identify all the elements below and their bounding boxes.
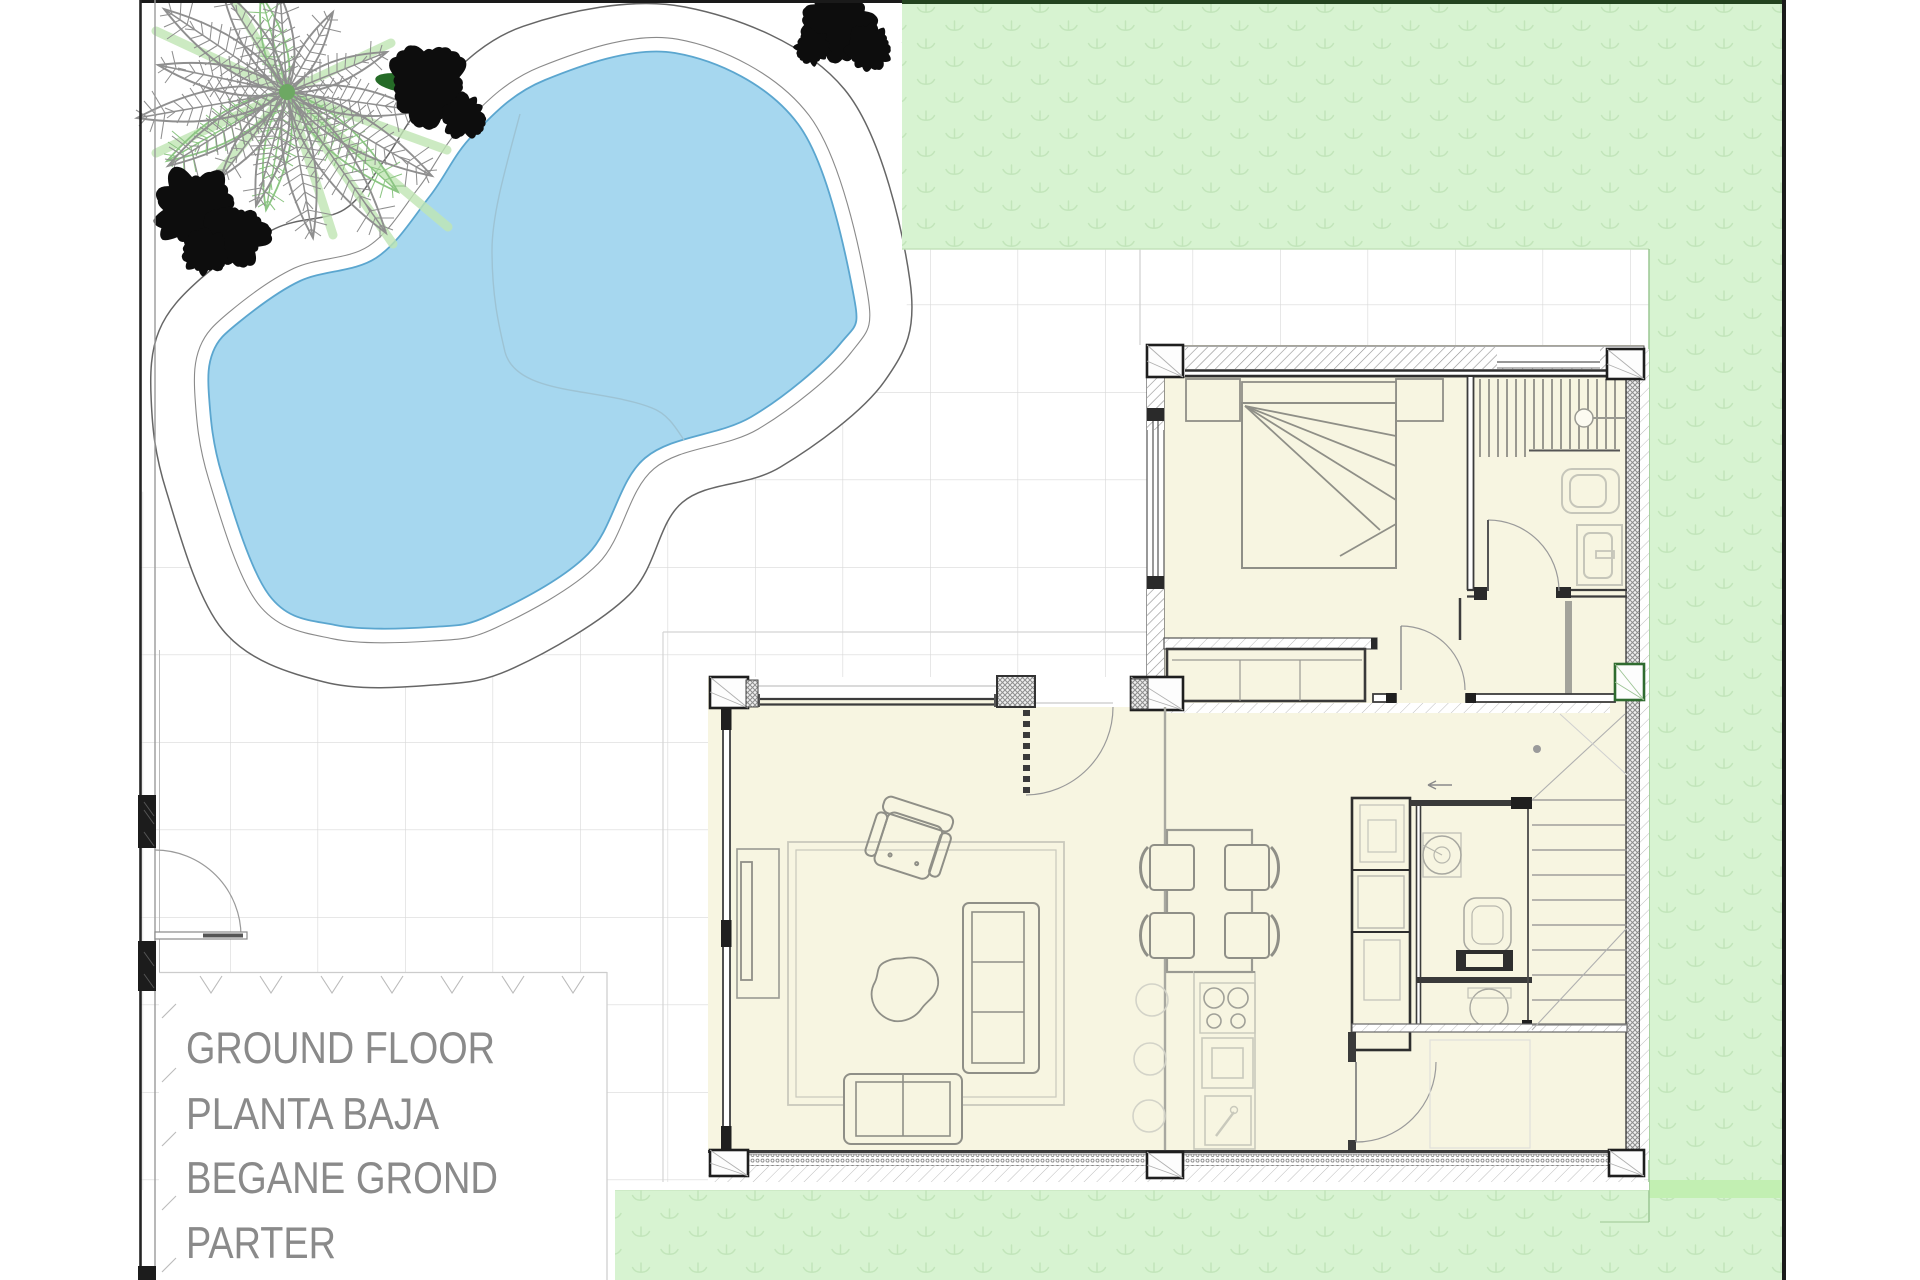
svg-text:GROUND FLOOR: GROUND FLOOR bbox=[186, 1024, 495, 1073]
svg-text:BEGANE GROND: BEGANE GROND bbox=[186, 1154, 498, 1203]
svg-text:PARTER: PARTER bbox=[186, 1219, 336, 1268]
svg-text:PLANTA BAJA: PLANTA BAJA bbox=[186, 1090, 439, 1139]
